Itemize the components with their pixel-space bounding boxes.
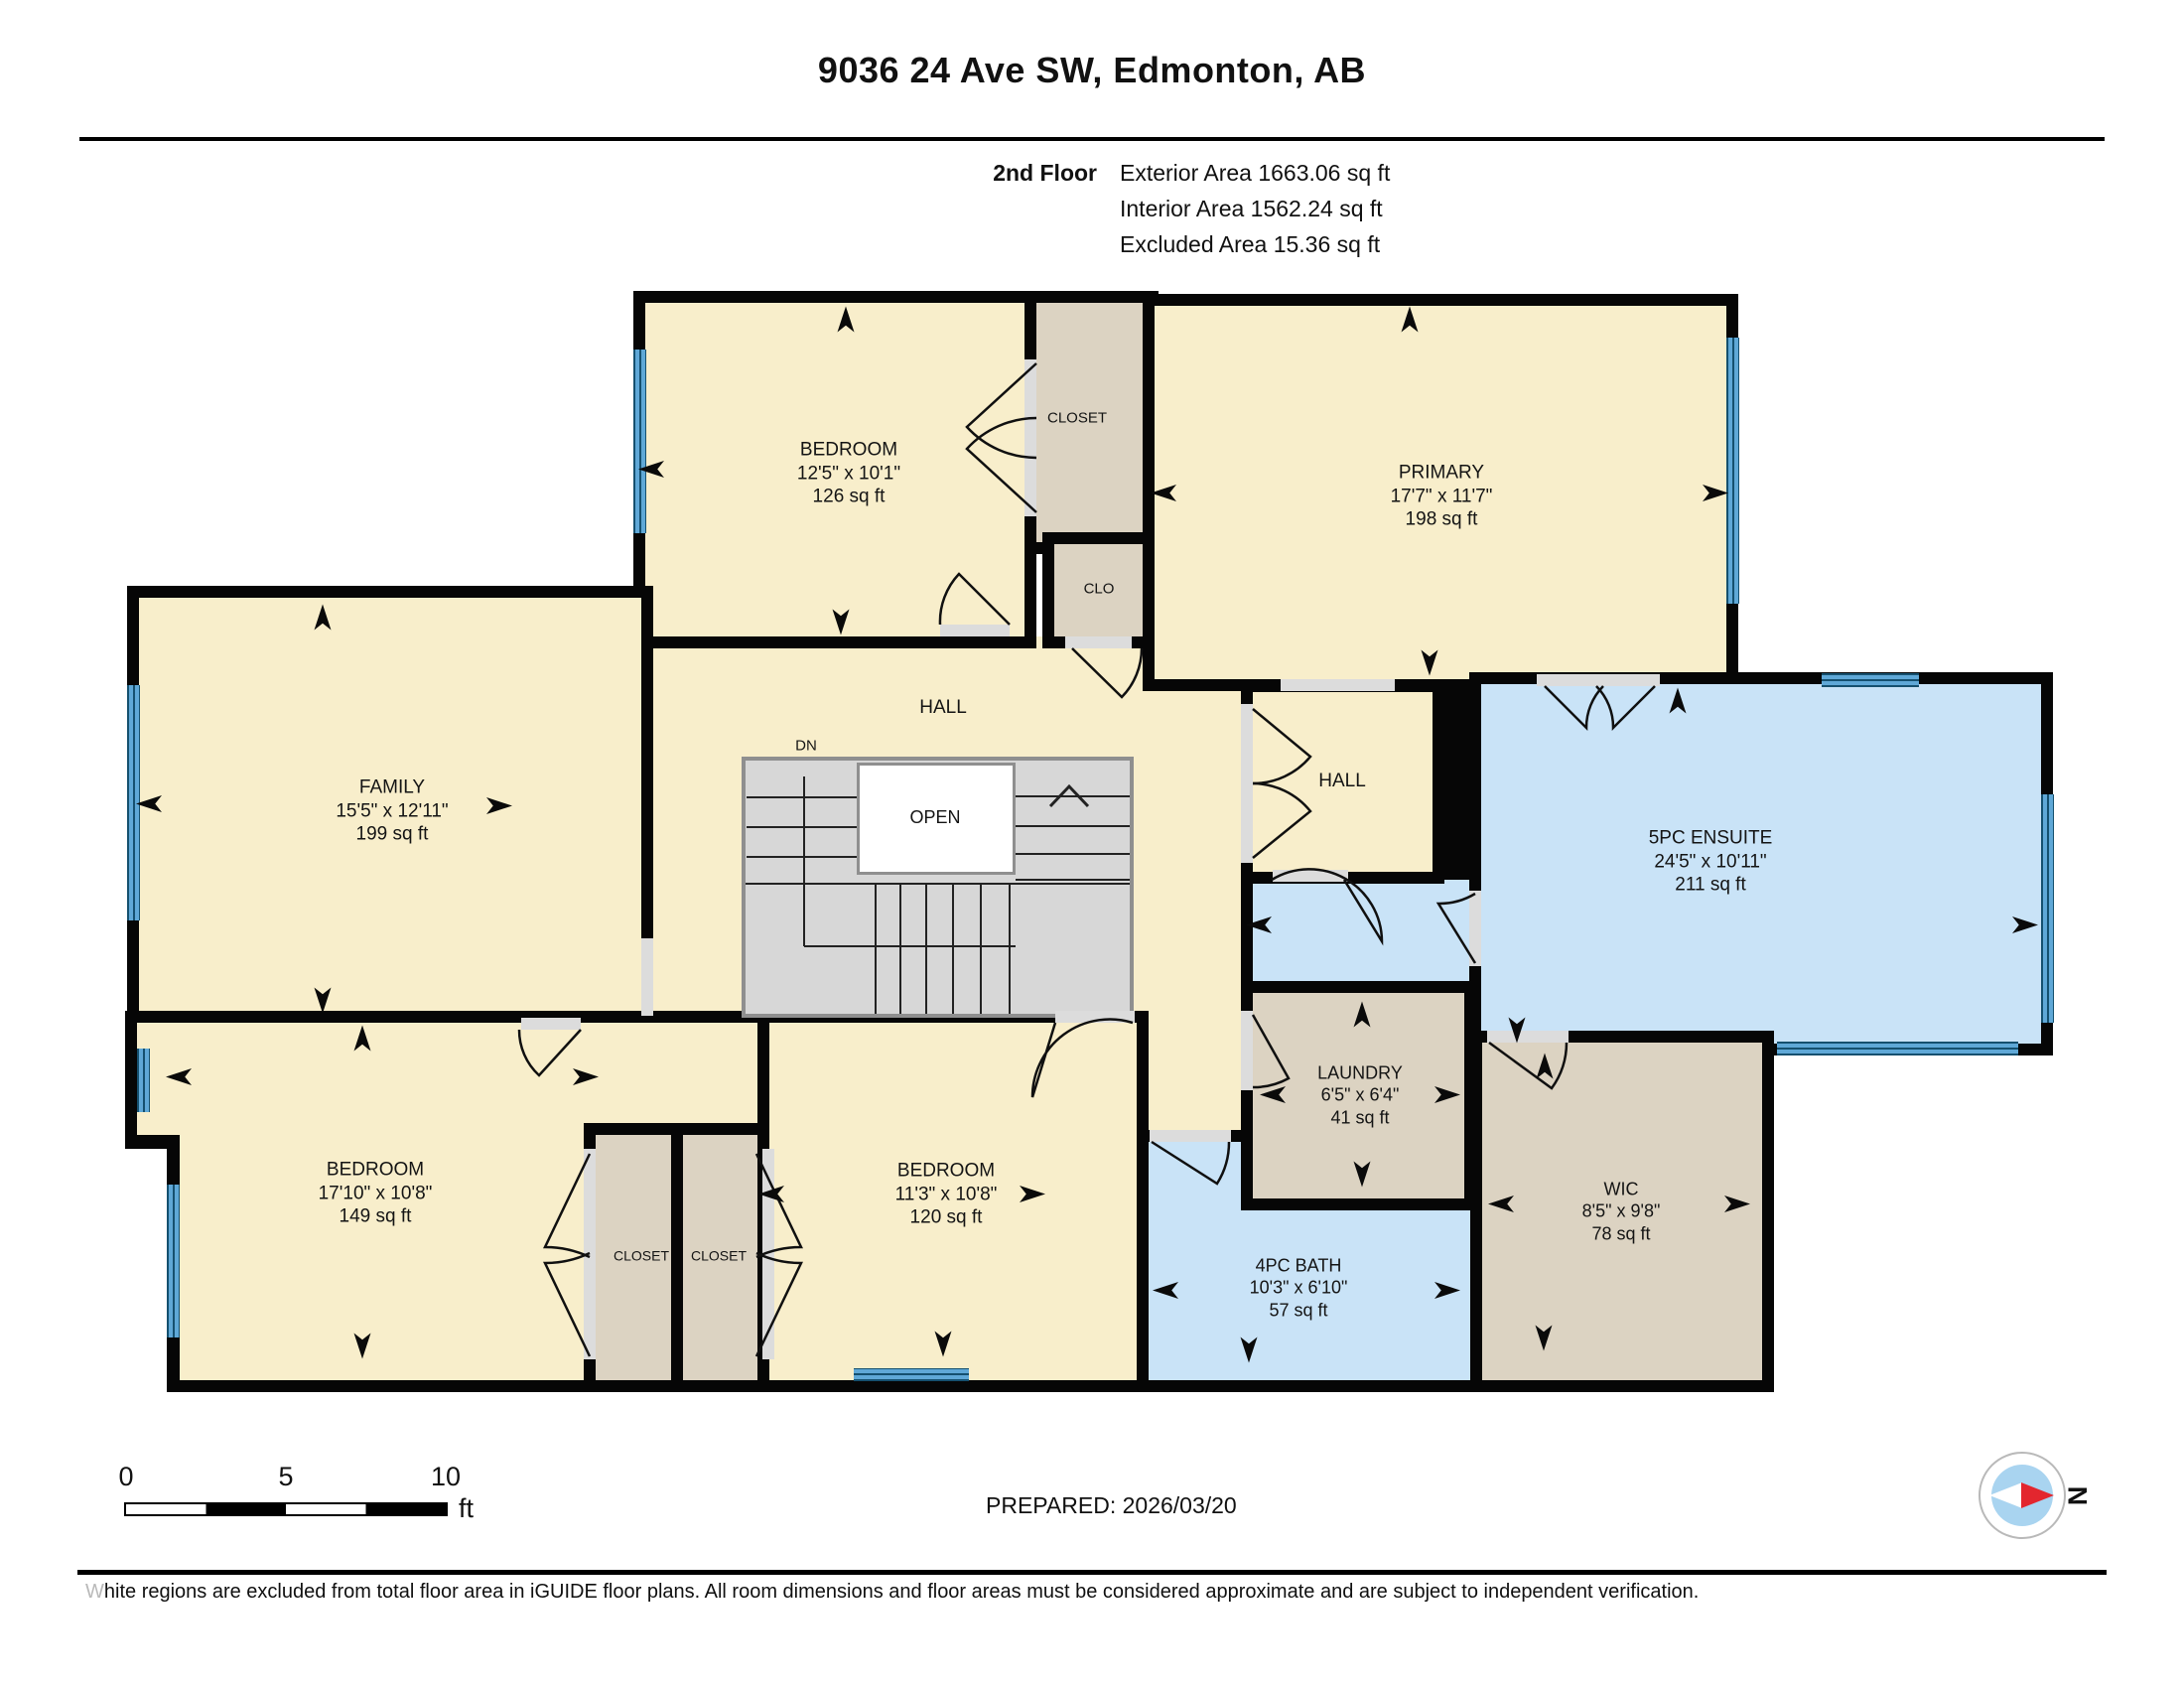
label-closet-top: CLOSET [1047, 410, 1107, 429]
label-hall-upper: HALL [919, 696, 967, 720]
label-closet-left-2: CLOSET [691, 1247, 747, 1264]
wall-notch [125, 1149, 167, 1392]
window-family [127, 685, 140, 920]
window-bedroom-left-1 [137, 1049, 150, 1112]
floorplan-page: 9036 24 Ave SW, Edmonton, AB 2nd Floor E… [0, 0, 2184, 1688]
label-wic: WIC8'5" x 9'8"78 sq ft [1582, 1179, 1661, 1245]
header-divider [79, 137, 2105, 141]
wall-hall-ensuite [1444, 680, 1481, 884]
window-primary [1726, 338, 1739, 604]
label-stairs-open: OPEN [909, 806, 960, 828]
label-clo: CLO [1084, 581, 1115, 600]
scale-unit: ft [459, 1493, 474, 1524]
window-ensuite-right [2041, 794, 2054, 1023]
label-family: FAMILY15'5" x 12'11"199 sq ft [336, 776, 448, 847]
label-ensuite: 5PC ENSUITE24'5" x 10'11"211 sq ft [1649, 827, 1773, 898]
label-closet-left-1: CLOSET [614, 1247, 669, 1264]
window-ensuite-top [1822, 673, 1919, 687]
window-ensuite-bottom [1777, 1042, 2018, 1055]
label-bedroom-top: BEDROOM12'5" x 10'1"126 sq ft [797, 439, 900, 509]
label-laundry: LAUNDRY6'5" x 6'4"41 sq ft [1317, 1062, 1403, 1129]
scale-zero: 0 [118, 1462, 133, 1492]
area-summary: Exterior Area 1663.06 sq ft Interior Are… [1120, 155, 1390, 262]
floor-label: 2nd Floor [804, 155, 1097, 191]
window-bedroom-top [633, 350, 646, 533]
label-bedroom-left: BEDROOM17'10" x 10'8"149 sq ft [319, 1159, 433, 1229]
exterior-area: Exterior Area 1663.06 sq ft [1120, 155, 1390, 191]
scale-mid: 5 [278, 1462, 293, 1492]
interior-area: Interior Area 1562.24 sq ft [1120, 191, 1390, 226]
label-primary: PRIMARY17'7" x 11'7"198 sq ft [1391, 462, 1493, 532]
label-hall-right: HALL [1318, 770, 1366, 793]
label-bedroom-mid: BEDROOM11'3" x 10'8"120 sq ft [895, 1160, 998, 1230]
disclaimer-text: White regions are excluded from total fl… [85, 1581, 1699, 1604]
label-bath: 4PC BATH10'3" x 6'10"57 sq ft [1250, 1255, 1348, 1322]
excluded-area: Excluded Area 15.36 sq ft [1120, 226, 1390, 262]
prepared-date: PREPARED: 2026/03/20 [986, 1492, 1237, 1519]
window-bedroom-mid [854, 1368, 969, 1381]
wall-step-h [137, 1135, 180, 1149]
footer-divider [77, 1570, 2107, 1575]
window-bedroom-left-2 [167, 1185, 180, 1337]
scale-end: 10 [431, 1462, 461, 1492]
compass-north-label: N [2061, 1486, 2092, 1506]
page-title: 9036 24 Ave SW, Edmonton, AB [0, 50, 2184, 91]
room-ensuite-vestibule [1241, 868, 1481, 993]
scale-bar [124, 1502, 448, 1516]
label-stairs-dn: DN [795, 738, 817, 757]
hall-corridor-area [1149, 691, 1241, 1143]
